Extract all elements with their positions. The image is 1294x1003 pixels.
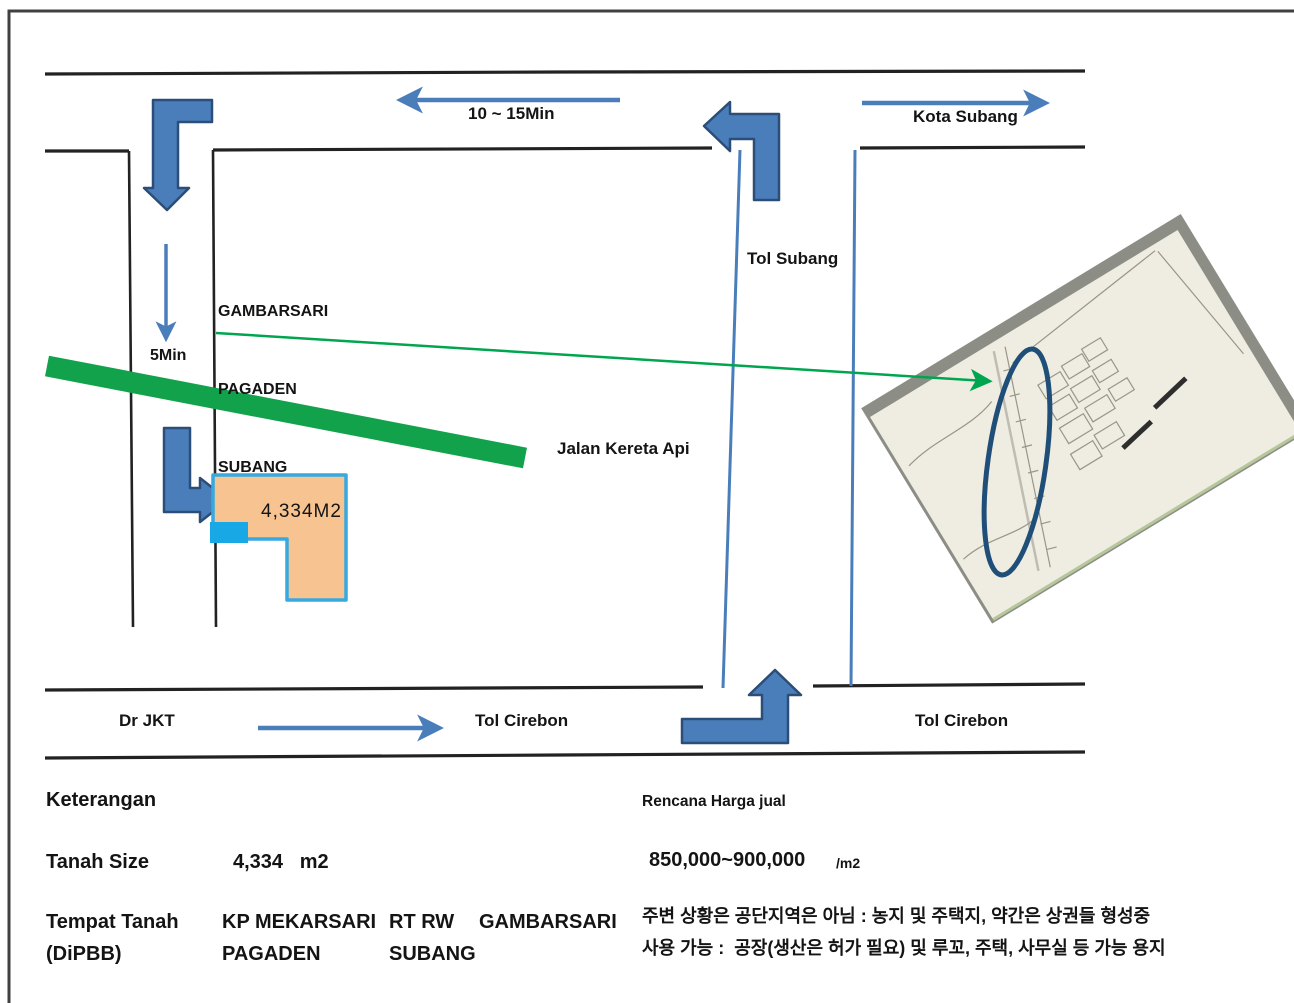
label-travel-time-top: 10 ~ 15Min (468, 104, 554, 124)
label-railway: Jalan Kereta Api (557, 439, 690, 459)
location-area: GAMBARSARI (479, 911, 617, 934)
label-area-line2: PAGADEN (218, 377, 328, 403)
label-tol-cirebon-right: Tol Cirebon (915, 711, 1008, 731)
price-unit: /m2 (836, 855, 860, 871)
elbow-arrow-turn-up (682, 670, 801, 743)
location-rt-2: SUBANG (389, 943, 476, 966)
label-parcel-area: 4,334M2 (261, 501, 342, 523)
note-line-2: 사용 가능 : 공장(생산은 허가 필요) 및 루꼬, 주택, 사무실 등 가능… (642, 938, 1166, 959)
price-heading: Rencana Harga jual (642, 793, 786, 811)
location-kp: KP MEKARSARI (222, 911, 376, 934)
toll-road-east-line (851, 150, 855, 686)
label-5min: 5Min (150, 347, 186, 365)
label-dr-jkt: Dr JKT (119, 711, 175, 731)
label-area-line3: SUBANG (218, 455, 328, 481)
cadastral-map-photo (861, 214, 1294, 624)
label-area-block: GAMBARSARI PAGADEN SUBANG (218, 247, 328, 533)
top-road-lower-line-b (213, 148, 712, 150)
land-sale-map-sheet: 10 ~ 15Min Kota Subang GAMBARSARI PAGADE… (0, 0, 1294, 1003)
elbow-arrow-turn-left (704, 102, 779, 200)
label-tol-cirebon-mid: Tol Cirebon (475, 711, 568, 731)
size-value: 4,334 m2 (233, 851, 329, 874)
price-value: 850,000~900,000 (649, 849, 805, 872)
bottom-road-upper-line-b (813, 684, 1085, 686)
bottom-road-upper-line-a (45, 687, 703, 690)
label-area-line1: GAMBARSARI (218, 299, 328, 325)
top-road-upper-line (45, 71, 1085, 74)
site-callout-arrow (216, 333, 986, 381)
location-label-2: (DiPBB) (46, 943, 122, 966)
photo-paper (870, 230, 1294, 620)
bottom-road-lower-line (45, 752, 1085, 758)
top-road-lower-line-c (860, 147, 1085, 148)
details-heading: Keterangan (46, 789, 156, 812)
map-drawing (0, 0, 1294, 1003)
note-line-1: 주변 상황은 공단지역은 아님 : 농지 및 주택지, 약간은 상권들 형성중 (642, 906, 1150, 927)
label-tol-subang: Tol Subang (747, 249, 838, 269)
label-kota-subang: Kota Subang (913, 107, 1018, 127)
location-label-1: Tempat Tanah (46, 911, 179, 934)
size-label: Tanah Size (46, 851, 149, 874)
toll-road-west-line (723, 150, 740, 688)
elbow-arrow-exit-down (144, 100, 212, 210)
location-kp-2: PAGADEN (222, 943, 321, 966)
location-rt: RT RW (389, 911, 454, 934)
